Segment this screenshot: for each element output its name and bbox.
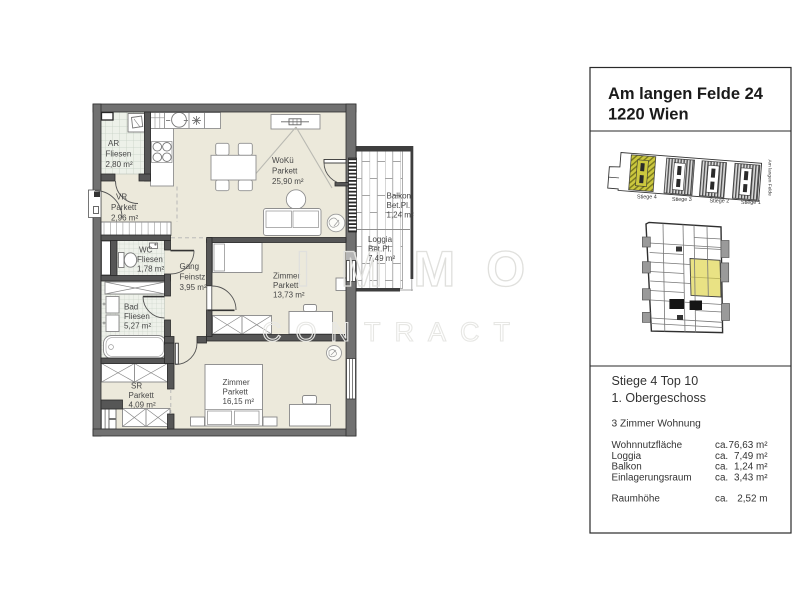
svg-text:Balkon: Balkon: [612, 462, 642, 473]
svg-text:76,63 m²: 76,63 m²: [729, 440, 769, 451]
svg-text:ca.: ca.: [715, 440, 728, 451]
svg-text:3,43 m²: 3,43 m²: [734, 472, 768, 483]
svg-text:Raumhöhe: Raumhöhe: [612, 494, 661, 505]
svg-text:CONTRACT: CONTRACT: [262, 317, 524, 347]
svg-text:Stiege 3: Stiege 3: [672, 197, 692, 203]
svg-text:Am langen Felde: Am langen Felde: [767, 160, 773, 197]
svg-text:Am langen Felde 24: Am langen Felde 24: [608, 85, 764, 103]
svg-text:BalkonBet.Pl.1,24 m²: BalkonBet.Pl.1,24 m²: [387, 192, 414, 220]
svg-text:IMMO: IMMO: [296, 241, 556, 297]
svg-text:ca.: ca.: [715, 472, 728, 483]
svg-text:ca.: ca.: [715, 494, 728, 505]
svg-text:Stiege 1: Stiege 1: [741, 200, 761, 206]
svg-text:Stiege 4 Top 10: Stiege 4 Top 10: [612, 374, 699, 388]
svg-text:Einlagerungsraum: Einlagerungsraum: [612, 472, 692, 483]
svg-text:ca.: ca.: [715, 462, 728, 473]
svg-text:Loggia: Loggia: [612, 451, 642, 462]
svg-text:Stiege 4: Stiege 4: [637, 195, 657, 201]
svg-text:1,24 m²: 1,24 m²: [734, 462, 768, 473]
svg-text:2,52 m: 2,52 m: [737, 494, 767, 505]
svg-text:ca.: ca.: [715, 451, 728, 462]
svg-text:7,49 m²: 7,49 m²: [734, 451, 768, 462]
svg-text:1220 Wien: 1220 Wien: [608, 106, 689, 124]
svg-text:1. Obergeschoss: 1. Obergeschoss: [612, 391, 707, 405]
svg-text:Stiege 2: Stiege 2: [710, 199, 730, 205]
svg-text:Wohnnutzfläche: Wohnnutzfläche: [612, 440, 683, 451]
svg-text:3 Zimmer Wohnung: 3 Zimmer Wohnung: [612, 419, 702, 430]
